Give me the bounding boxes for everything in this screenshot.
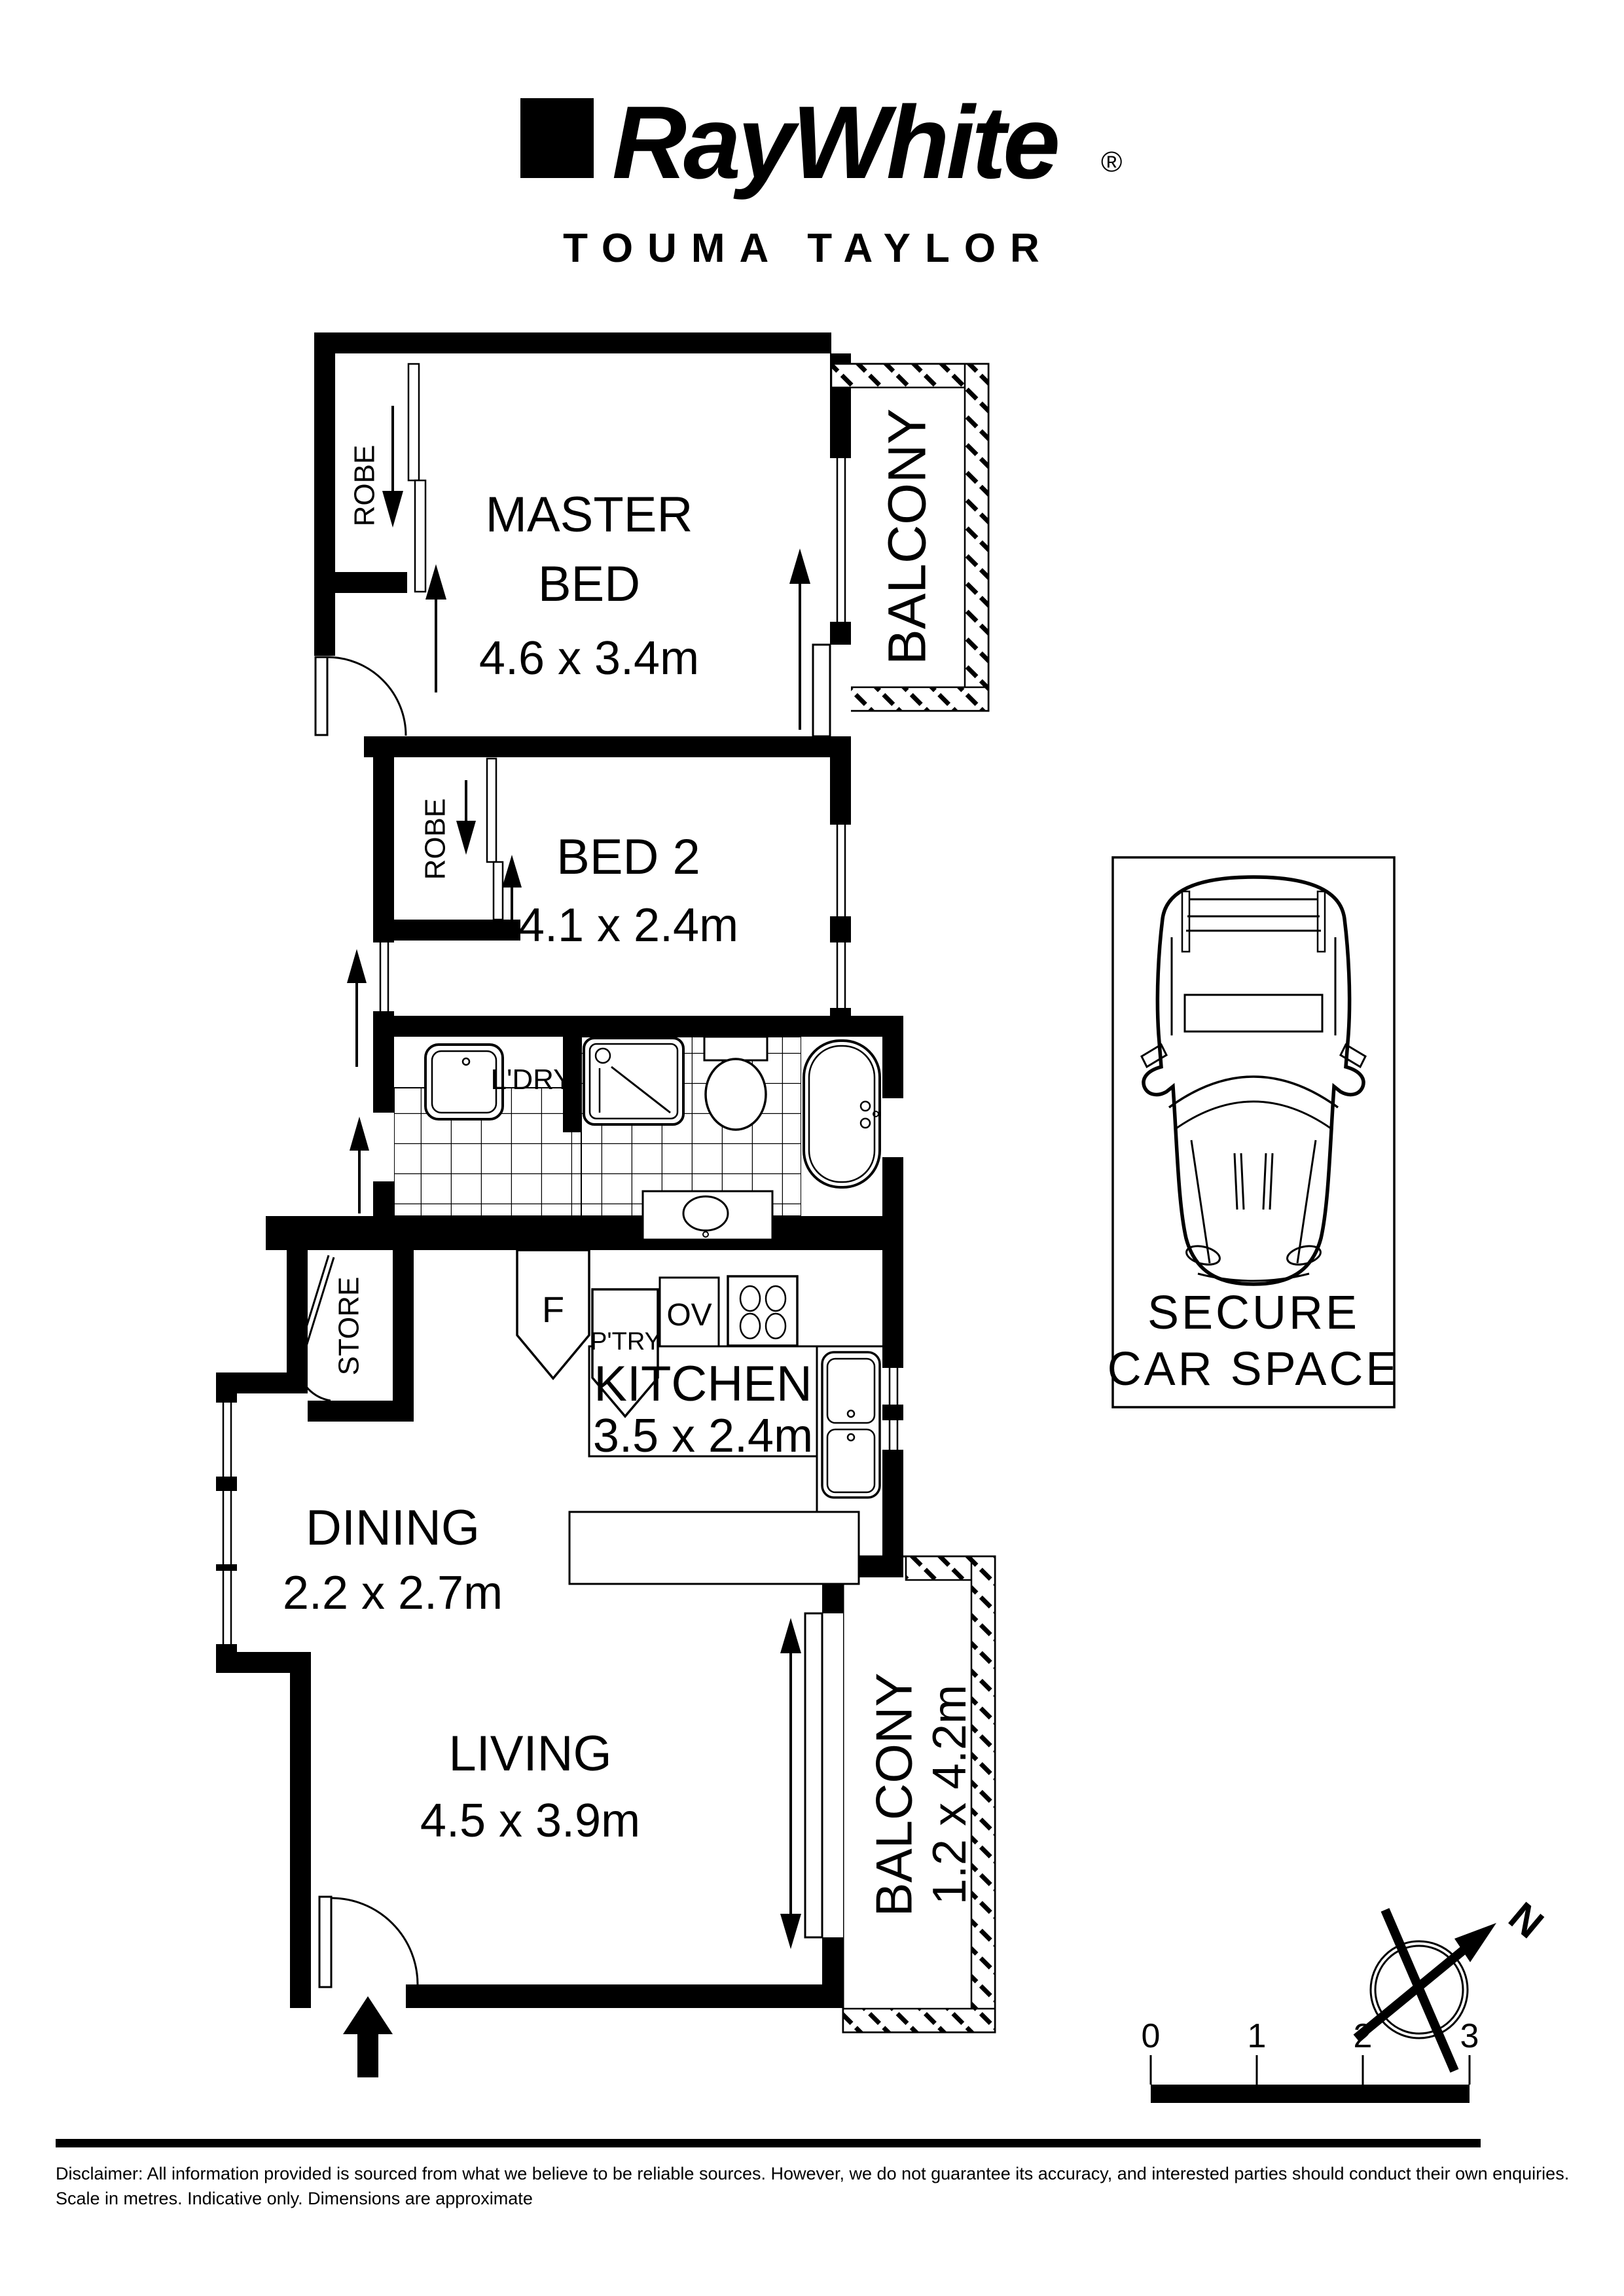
scale-2: 2 xyxy=(1354,2017,1373,2055)
balcony-bottom: BALCONY 1.2 x 4.2m xyxy=(843,1556,995,2032)
store-label: STORE xyxy=(333,1277,365,1376)
master-dims: 4.6 x 3.4m xyxy=(479,632,699,685)
bed2-dims: 4.1 x 2.4m xyxy=(518,899,738,952)
balcony-bottom-label: BALCONY xyxy=(865,1673,923,1917)
kitchen-label: KITCHEN xyxy=(594,1356,812,1412)
window-icon xyxy=(216,1403,237,1644)
kitchen-sink xyxy=(822,1352,880,1498)
compass: N xyxy=(1356,1893,1552,2071)
sliding-door-icon xyxy=(813,645,851,736)
kitchen-dims: 3.5 x 2.4m xyxy=(593,1410,813,1462)
scale-1: 1 xyxy=(1248,2017,1267,2055)
dining-dims: 2.2 x 2.7m xyxy=(283,1567,503,1619)
shower xyxy=(584,1038,683,1124)
entry-arrow-icon xyxy=(343,1996,393,2077)
car-space-label-1: SECURE xyxy=(1147,1287,1360,1339)
car-space-label-2: CAR SPACE xyxy=(1108,1343,1400,1395)
brand-name: RayWhite xyxy=(612,85,1058,200)
living-dims: 4.5 x 3.9m xyxy=(420,1795,640,1847)
slider-panel xyxy=(487,759,496,862)
cooktop xyxy=(728,1276,797,1346)
bathtub xyxy=(801,1037,882,1216)
slider-panel xyxy=(408,364,419,480)
window-icon xyxy=(373,942,394,1011)
island-bench xyxy=(569,1512,859,1584)
sliding-door-icon xyxy=(805,1613,843,1937)
footer-divider xyxy=(56,2139,1481,2147)
arrow-down-icon xyxy=(456,780,476,855)
door-bathroom-opening xyxy=(373,1113,394,1181)
master-label-1: MASTER xyxy=(486,487,693,543)
brand-logo: RayWhite ® TOUMA TAYLOR xyxy=(520,85,1122,271)
balcony-top-label: BALCONY xyxy=(878,408,937,665)
scale-bar: 0 1 2 3 xyxy=(1142,2017,1479,2103)
window-icon xyxy=(830,825,851,1008)
pantry-label: P'TRY xyxy=(590,1328,661,1355)
disclaimer-line-2: Scale in metres. Indicative only. Dimens… xyxy=(56,2189,533,2208)
toilet xyxy=(704,1037,767,1130)
floorplan-page: RayWhite ® TOUMA TAYLOR xyxy=(0,0,1624,2296)
fridge-label: F xyxy=(542,1289,564,1330)
laundry-label: L'DRY xyxy=(491,1064,573,1096)
north-label: N xyxy=(1500,1893,1552,1947)
logo-square-icon xyxy=(520,98,594,178)
arrow-up-icon xyxy=(347,949,367,1067)
oven: OV xyxy=(660,1278,719,1346)
balcony-top: BALCONY xyxy=(831,364,988,711)
agency-name: TOUMA TAYLOR xyxy=(563,226,1054,271)
registered-mark: ® xyxy=(1101,146,1122,178)
scale-0: 0 xyxy=(1142,2017,1161,2055)
robe-bed2-label: ROBE xyxy=(420,798,452,880)
arrow-up-icon xyxy=(350,1117,369,1213)
arrow-up-icon xyxy=(425,564,446,692)
robe-master-label: ROBE xyxy=(349,445,381,527)
door-master xyxy=(314,656,406,736)
floorplan-canvas: RayWhite ® TOUMA TAYLOR xyxy=(0,0,1624,2296)
arrow-up-icon xyxy=(789,548,810,730)
door-entry xyxy=(311,1897,418,2008)
slider-panel xyxy=(494,862,503,920)
vanity-basin xyxy=(643,1191,772,1240)
car-space: SECURE CAR SPACE xyxy=(1108,857,1400,1407)
dining-label: DINING xyxy=(306,1500,480,1556)
window-icon xyxy=(830,458,851,622)
footer: Disclaimer: All information provided is … xyxy=(56,2139,1569,2208)
slider-panel xyxy=(415,480,425,592)
disclaimer-line-1: Disclaimer: All information provided is … xyxy=(56,2164,1569,2183)
wall-niche xyxy=(882,1098,903,1157)
scale-3: 3 xyxy=(1460,2017,1479,2055)
fridge: F xyxy=(517,1250,589,1378)
master-label-2: BED xyxy=(538,556,640,612)
arrow-double-icon xyxy=(780,1618,801,1949)
balcony-bottom-dims: 1.2 x 4.2m xyxy=(924,1685,976,1905)
arrow-down-icon xyxy=(382,406,403,528)
oven-label: OV xyxy=(666,1298,712,1333)
bed2-label: BED 2 xyxy=(556,829,700,885)
living-label: LIVING xyxy=(448,1726,611,1782)
